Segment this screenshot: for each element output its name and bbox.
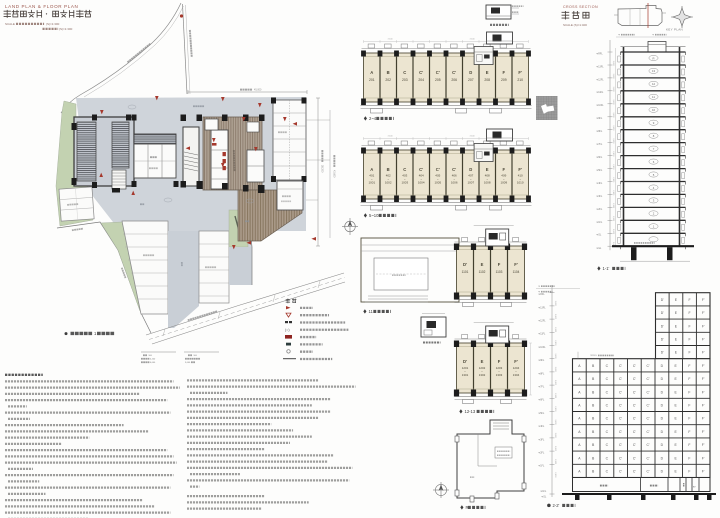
svg-text:F': F'	[702, 404, 705, 408]
svg-text:2,800: 2,800	[612, 216, 614, 222]
svg-text:▼: ▼	[538, 291, 540, 294]
svg-text:F: F	[503, 70, 506, 75]
svg-text:D': D'	[661, 324, 664, 328]
svg-text:▼2FL: ▼2FL	[596, 208, 603, 211]
svg-text:1-1': 1-1'	[603, 266, 610, 271]
svg-text:2,800: 2,800	[612, 113, 614, 119]
svg-text:E: E	[486, 167, 489, 172]
svg-text:▼12FL: ▼12FL	[596, 78, 604, 81]
svg-text:13: 13	[652, 69, 656, 73]
svg-text:11: 11	[652, 95, 655, 99]
svg-text:▼GL: ▼GL	[541, 496, 547, 499]
svg-text:F: F	[688, 377, 690, 381]
svg-text:C: C	[403, 167, 406, 172]
svg-text:D': D'	[661, 351, 664, 355]
svg-text:C': C'	[436, 70, 440, 75]
svg-text:F': F'	[518, 167, 522, 172]
svg-text:▼1FL: ▼1FL	[540, 490, 547, 493]
svg-text:F: F	[688, 390, 690, 394]
svg-text:C': C'	[633, 377, 636, 381]
svg-text:1202: 1202	[479, 366, 486, 370]
svg-text:1101: 1101	[462, 270, 469, 274]
svg-text:C': C'	[619, 443, 622, 447]
svg-text:E: E	[486, 70, 489, 75]
svg-text:F: F	[688, 443, 690, 447]
svg-text:(○): (○)	[285, 328, 290, 332]
svg-text:1204: 1204	[513, 366, 520, 370]
svg-text:403: 403	[402, 174, 407, 178]
svg-text:F': F'	[702, 324, 705, 328]
svg-text:▼11FL: ▼11FL	[596, 91, 604, 94]
svg-text:408: 408	[485, 174, 490, 178]
svg-text:▼GL: ▼GL	[596, 247, 602, 250]
svg-text:▼6FL: ▼6FL	[596, 156, 603, 159]
svg-text:F: F	[688, 364, 690, 368]
svg-text:42,600: 42,600	[333, 170, 336, 178]
svg-text:F': F'	[702, 443, 705, 447]
svg-text:1302: 1302	[479, 373, 486, 377]
svg-text:2,800: 2,800	[612, 138, 614, 144]
svg-text:C': C'	[633, 430, 636, 434]
svg-text:SCALE (S)=1:400: SCALE (S)=1:400	[563, 23, 587, 27]
svg-text:202: 202	[385, 78, 391, 82]
svg-text:▼: ▼	[652, 34, 654, 37]
svg-text:F': F'	[702, 430, 705, 434]
svg-text:C': C'	[647, 364, 650, 368]
svg-text:(S)=1:300: (S)=1:300	[59, 27, 73, 31]
svg-text:1003: 1003	[401, 181, 408, 185]
svg-text:1009: 1009	[500, 181, 507, 185]
svg-text:▼13FL: ▼13FL	[596, 65, 604, 68]
svg-text:C': C'	[619, 417, 622, 421]
svg-text:203: 203	[402, 78, 408, 82]
svg-text:F': F'	[514, 262, 518, 267]
svg-text:7,100: 7,100	[470, 39, 476, 41]
svg-text:1201: 1201	[462, 366, 469, 370]
svg-text:▼13FL: ▼13FL	[538, 306, 546, 309]
svg-text:F': F'	[702, 311, 705, 315]
svg-text:D': D'	[463, 262, 467, 267]
svg-text:5~10: 5~10	[369, 213, 379, 218]
svg-text:▼8FL: ▼8FL	[596, 130, 603, 133]
svg-text:410: 410	[518, 174, 523, 178]
svg-text:B: B	[387, 70, 390, 75]
svg-text:3,000: 3,000	[185, 362, 191, 364]
svg-text:209: 209	[501, 78, 507, 82]
svg-text:C': C'	[647, 430, 650, 434]
svg-text:▼11FL: ▼11FL	[590, 354, 598, 357]
svg-text:▼7FL: ▼7FL	[596, 143, 603, 146]
svg-text:(S)=1:300: (S)=1:300	[46, 22, 60, 26]
svg-text:1008: 1008	[484, 181, 491, 185]
svg-text:C': C'	[647, 443, 650, 447]
svg-text:F: F	[688, 456, 690, 460]
svg-text:C': C'	[619, 364, 622, 368]
svg-text:C': C'	[647, 417, 650, 421]
svg-text:▼4FL: ▼4FL	[538, 425, 545, 428]
svg-text:7,100: 7,100	[388, 39, 394, 41]
svg-text:F': F'	[702, 351, 705, 355]
svg-text:12: 12	[652, 82, 656, 86]
svg-text:▼6FL: ▼6FL	[538, 399, 545, 402]
svg-text:409: 409	[501, 174, 506, 178]
svg-text:2,800: 2,800	[612, 177, 614, 183]
svg-text:F': F'	[702, 377, 705, 381]
svg-text:407: 407	[468, 174, 473, 178]
svg-text:E: E	[481, 262, 484, 267]
svg-text:▼: ▼	[538, 285, 540, 288]
svg-text:210: 210	[517, 78, 523, 82]
svg-text:C': C'	[619, 456, 622, 460]
svg-text:C': C'	[619, 390, 622, 394]
svg-text:1303: 1303	[496, 373, 503, 377]
svg-text:405: 405	[435, 174, 440, 178]
svg-text:2,800: 2,800	[612, 125, 614, 131]
svg-text:▼5FL: ▼5FL	[538, 412, 545, 415]
svg-text:7,100: 7,100	[388, 136, 394, 138]
svg-text:1006: 1006	[451, 181, 458, 185]
svg-text:C': C'	[647, 470, 650, 474]
svg-text:D: D	[469, 167, 472, 172]
svg-text:F: F	[688, 404, 690, 408]
svg-text:▼8FL: ▼8FL	[538, 372, 545, 375]
svg-text:1001: 1001	[368, 181, 375, 185]
svg-text:F': F'	[702, 470, 705, 474]
svg-text:C': C'	[619, 430, 622, 434]
svg-text:2,800: 2,800	[612, 203, 614, 209]
svg-text:2,800: 2,800	[612, 87, 614, 93]
svg-text:F': F'	[518, 70, 522, 75]
svg-text:207: 207	[468, 78, 474, 82]
svg-text:▼10FL: ▼10FL	[538, 346, 546, 349]
svg-text:LAND PLAN & FLOOR PLAN: LAND PLAN & FLOOR PLAN	[5, 4, 78, 9]
svg-text:1304: 1304	[513, 373, 520, 377]
svg-text:F: F	[688, 470, 690, 474]
svg-text:1005: 1005	[434, 181, 441, 185]
svg-text:F': F'	[702, 338, 705, 342]
svg-text:206: 206	[451, 78, 457, 82]
svg-text:F': F'	[702, 298, 705, 302]
svg-text:2,800: 2,800	[554, 472, 556, 478]
svg-text:12-13: 12-13	[465, 409, 476, 414]
svg-text:A: A	[370, 167, 373, 172]
svg-text:406: 406	[452, 174, 457, 178]
svg-text:F': F'	[514, 359, 518, 364]
svg-text:2-2': 2-2'	[553, 503, 560, 508]
svg-text:C': C'	[647, 404, 650, 408]
svg-text:▼: ▼	[618, 34, 620, 37]
svg-text:A: A	[370, 70, 373, 75]
svg-text:C': C'	[633, 390, 636, 394]
svg-text:C': C'	[419, 70, 423, 75]
svg-text:D: D	[469, 70, 472, 75]
svg-text:▼1FL: ▼1FL	[538, 465, 545, 468]
svg-text:▼5FL: ▼5FL	[596, 169, 603, 172]
svg-text:SCALE: SCALE	[5, 22, 15, 26]
svg-text:▼3FL: ▼3FL	[538, 438, 545, 441]
svg-text:1301: 1301	[462, 373, 469, 377]
svg-text:▼7FL: ▼7FL	[538, 386, 545, 389]
svg-text:1104: 1104	[513, 270, 520, 274]
svg-text:201: 201	[369, 78, 375, 82]
svg-text:C': C'	[647, 377, 650, 381]
svg-text:11: 11	[369, 309, 374, 314]
svg-text:F': F'	[702, 417, 705, 421]
svg-text:2~4: 2~4	[369, 116, 377, 121]
svg-text:404: 404	[419, 174, 424, 178]
svg-text:▼2FL: ▼2FL	[538, 452, 545, 455]
svg-text:▼3FL: ▼3FL	[596, 195, 603, 198]
svg-text:C': C'	[619, 377, 622, 381]
svg-text:2,800: 2,800	[612, 100, 614, 106]
svg-text:D': D'	[661, 311, 664, 315]
svg-text:F: F	[689, 324, 691, 328]
svg-text:KEY PLAN: KEY PLAN	[666, 28, 683, 32]
svg-text:R: R	[652, 56, 654, 60]
svg-text:45,000: 45,000	[254, 89, 262, 92]
svg-text:2,800: 2,800	[612, 61, 614, 67]
svg-text:▼1FL: ▼1FL	[596, 221, 603, 224]
svg-text:C': C'	[633, 456, 636, 460]
svg-text:402: 402	[386, 174, 391, 178]
svg-text:7,100: 7,100	[470, 136, 476, 138]
svg-text:C': C'	[419, 167, 423, 172]
svg-text:F': F'	[702, 456, 705, 460]
svg-text:C': C'	[647, 390, 650, 394]
svg-text:F: F	[689, 338, 691, 342]
svg-text:C': C'	[647, 456, 650, 460]
svg-text:D': D'	[661, 298, 664, 302]
svg-text:205: 205	[435, 78, 441, 82]
svg-text:C': C'	[619, 470, 622, 474]
svg-text:F: F	[688, 417, 690, 421]
svg-text:F: F	[498, 262, 501, 267]
svg-text:1102: 1102	[479, 270, 486, 274]
svg-text:2,800: 2,800	[612, 151, 614, 157]
svg-text:CROSS SECTION: CROSS SECTION	[563, 5, 598, 9]
svg-text:6,000: 6,000	[150, 362, 156, 364]
svg-text:C': C'	[452, 70, 456, 75]
svg-text:C': C'	[633, 364, 636, 368]
svg-text:▼11FL: ▼11FL	[538, 333, 546, 336]
svg-text:38,200: 38,200	[321, 165, 324, 173]
svg-text:F: F	[688, 430, 690, 434]
svg-text:2,800: 2,800	[612, 229, 614, 235]
svg-text:C: C	[403, 70, 406, 75]
svg-text:1004: 1004	[418, 181, 425, 185]
svg-text:1002: 1002	[385, 181, 392, 185]
svg-text:C': C'	[619, 404, 622, 408]
svg-text:1007: 1007	[467, 181, 474, 185]
svg-text:C': C'	[633, 417, 636, 421]
svg-text:B: B	[387, 167, 390, 172]
svg-text:E: E	[481, 359, 484, 364]
svg-text:▼9FL: ▼9FL	[596, 117, 603, 120]
svg-text:401: 401	[369, 174, 374, 178]
svg-text:▼9FL: ▼9FL	[538, 359, 545, 362]
svg-text:C': C'	[633, 443, 636, 447]
svg-text:1203: 1203	[496, 366, 503, 370]
svg-text:▼GL: ▼GL	[596, 234, 602, 237]
svg-text:D': D'	[661, 338, 664, 342]
svg-text:F: F	[498, 359, 501, 364]
svg-text:F': F'	[702, 364, 705, 368]
svg-text:208: 208	[484, 78, 490, 82]
svg-text:1010: 1010	[517, 181, 524, 185]
svg-text:F': F'	[702, 390, 705, 394]
svg-text:F: F	[689, 351, 691, 355]
svg-text:▼4FL: ▼4FL	[596, 182, 603, 185]
svg-text:2,800: 2,800	[612, 190, 614, 196]
svg-text:▼RFL: ▼RFL	[596, 52, 603, 55]
svg-text:C': C'	[633, 470, 636, 474]
svg-text:C': C'	[452, 167, 456, 172]
svg-text:F: F	[503, 167, 506, 172]
svg-text:2,800: 2,800	[612, 164, 614, 170]
svg-text:F: F	[689, 311, 691, 315]
svg-text:10: 10	[652, 108, 656, 112]
svg-text:1103: 1103	[496, 270, 503, 274]
svg-text:C': C'	[633, 404, 636, 408]
svg-text:4,200: 4,200	[150, 359, 156, 361]
svg-text:F: F	[689, 298, 691, 302]
svg-text:204: 204	[418, 78, 424, 82]
svg-text:2,800: 2,800	[612, 74, 614, 80]
svg-text:▼12FL: ▼12FL	[538, 320, 546, 323]
svg-text:▼RFL: ▼RFL	[538, 293, 545, 296]
svg-text:C': C'	[436, 167, 440, 172]
svg-text:D': D'	[463, 359, 467, 364]
svg-text:▼10FL: ▼10FL	[596, 104, 604, 107]
